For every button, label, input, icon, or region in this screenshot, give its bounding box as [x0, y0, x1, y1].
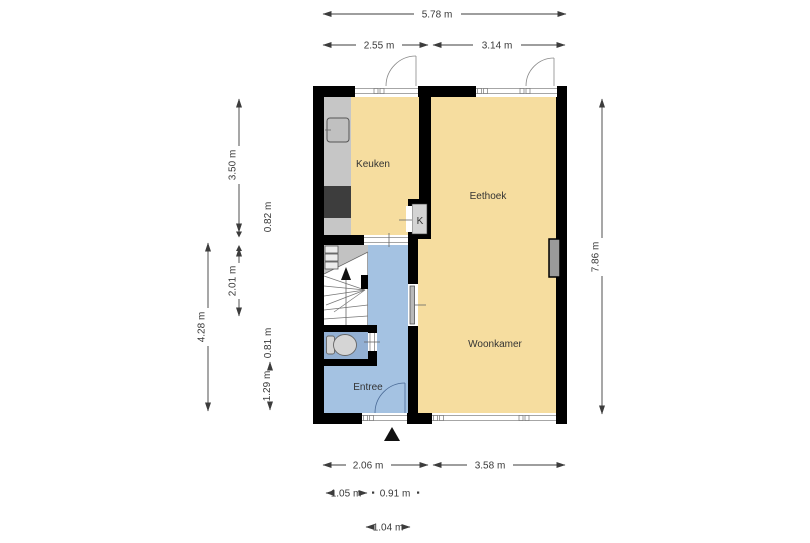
- toilet-icon: [327, 335, 357, 356]
- wall-hall-living-lower: [408, 326, 418, 413]
- dim-top-total: 5.78 m: [422, 10, 453, 21]
- dim-left-kitchen: 3.50 m: [228, 150, 239, 181]
- opening-bg: [362, 413, 407, 424]
- dim-bottom-left: 2.06 m: [353, 461, 384, 472]
- dim-bottom-d3: 1.04 m: [373, 523, 404, 534]
- stair-step: [325, 254, 338, 261]
- door-swing-arc: [526, 58, 554, 86]
- stove-icon: [324, 186, 351, 218]
- dim-left-entry: 1.29 m: [262, 371, 273, 402]
- wall-stairs-tick: [361, 275, 368, 289]
- radiator-niche: [549, 239, 560, 277]
- entrance-marker-icon: [384, 427, 400, 441]
- opening-bg: [364, 235, 408, 245]
- window-top-kitchen: [355, 56, 418, 97]
- wall-left: [313, 86, 324, 424]
- toilet-bowl: [334, 335, 357, 356]
- room-woonkamer-floor-strip: [418, 239, 431, 413]
- dim-bottom-right: 3.58 m: [475, 461, 506, 472]
- wall-toilet-right-top: [368, 325, 377, 333]
- wall-stairs-toilet: [324, 325, 368, 332]
- wall-kitchen-dining: [419, 86, 431, 201]
- room-eethoek-woonkamer-floor: [431, 97, 556, 413]
- dim-right-total: 7.86 m: [591, 242, 602, 273]
- dim-left-stairs: 2.01 m: [228, 266, 239, 297]
- opening-bg: [476, 86, 557, 97]
- door-panel: [410, 286, 415, 324]
- floorplan-page: Keuken Eethoek Woonkamer Entree K 5.78 m…: [0, 0, 810, 543]
- label-keuken: Keuken: [356, 159, 390, 170]
- floorplan-drawing: Keuken Eethoek Woonkamer Entree K 5.78 m…: [0, 0, 810, 543]
- opening-kitchen-hall: [364, 233, 408, 247]
- kitchen-counter: [324, 97, 351, 235]
- label-eethoek: Eethoek: [470, 191, 508, 202]
- dim-left-total: 4.28 m: [197, 312, 208, 343]
- wall-kitchen-hall: [324, 235, 364, 245]
- label-closet-k: K: [417, 216, 424, 227]
- door-swing-arc: [386, 56, 416, 86]
- dim-left-counter: 0.82 m: [263, 202, 274, 233]
- label-woonkamer: Woonkamer: [468, 339, 522, 350]
- wall-toilet-bottom: [313, 359, 377, 366]
- stair-step: [325, 262, 338, 269]
- window-top-dining: [476, 58, 557, 97]
- dim-top-left: 2.55 m: [364, 41, 395, 52]
- dim-left-toilet: 0.81 m: [263, 328, 274, 359]
- wall-hall-living-upper: [408, 239, 418, 284]
- opening-bg: [355, 86, 418, 97]
- opening-bg: [432, 413, 556, 424]
- dim-bottom-d1: 1.05 m: [331, 489, 362, 500]
- window-bottom-living: [432, 413, 556, 424]
- dim-top-right: 3.14 m: [482, 41, 513, 52]
- stair-step: [325, 246, 338, 253]
- closet-opening: [406, 206, 412, 232]
- dim-bottom-d2: 0.91 m: [380, 489, 411, 500]
- label-entree: Entree: [353, 382, 383, 393]
